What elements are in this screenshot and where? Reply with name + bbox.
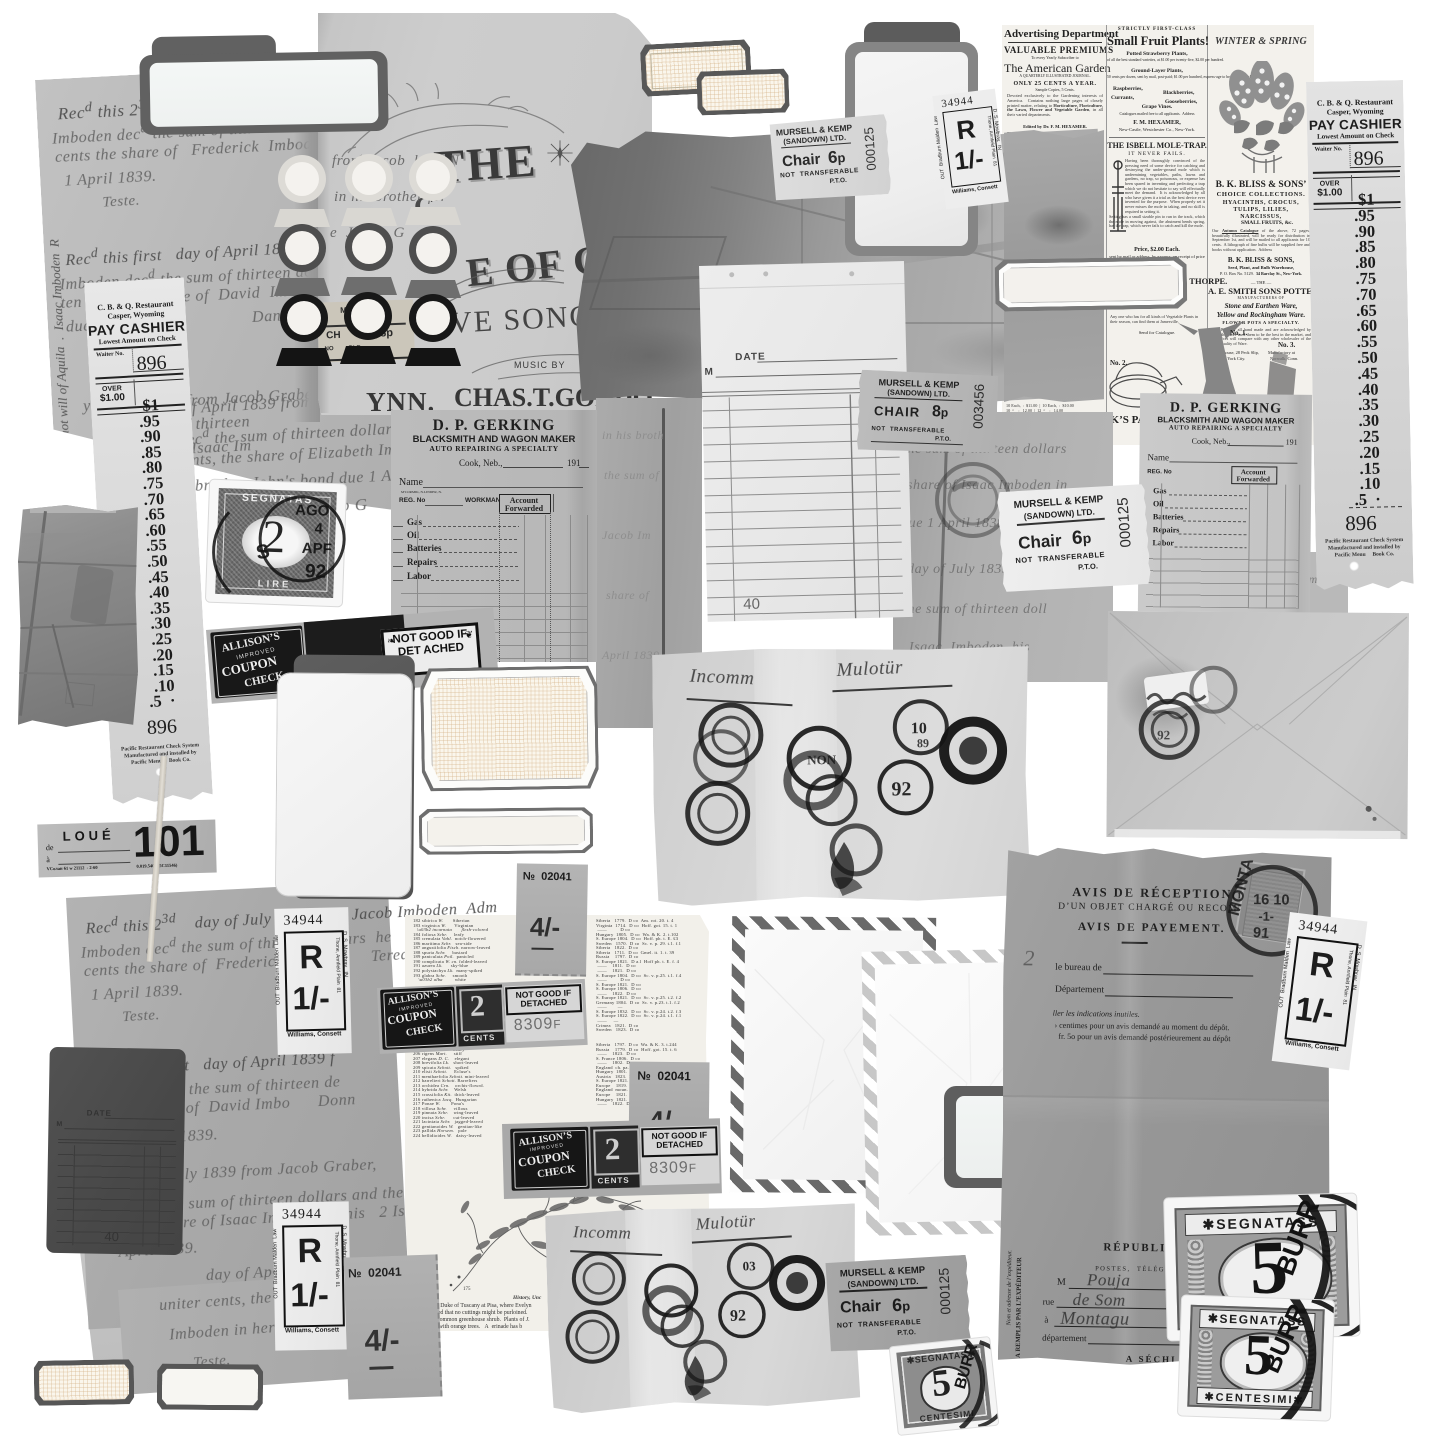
svg-text:BURR: BURR: [1257, 1300, 1312, 1377]
svg-text:S: S: [254, 540, 271, 564]
svg-text:BURR: BURR: [952, 1341, 981, 1391]
svg-text:92: 92: [1157, 727, 1170, 742]
svg-text:No. 2.: No. 2.: [1110, 359, 1128, 367]
svg-text:03: 03: [742, 1258, 756, 1273]
svg-text:BURR: BURR: [1270, 1196, 1325, 1280]
svg-text:89: 89: [917, 736, 929, 750]
svg-text:91: 91: [1252, 925, 1269, 942]
svg-text:AGO: AGO: [295, 502, 330, 520]
svg-text:APF: APF: [302, 540, 333, 558]
svg-text:92: 92: [730, 1307, 746, 1324]
svg-text:16 10: 16 10: [1253, 892, 1290, 909]
svg-text:4: 4: [314, 520, 324, 537]
svg-text:-1-: -1-: [1258, 909, 1274, 924]
svg-text:NON: NON: [807, 752, 837, 767]
svg-text:No. 1.: No. 1.: [1230, 329, 1248, 337]
svg-text:92: 92: [305, 561, 327, 583]
svg-text:92: 92: [891, 778, 911, 800]
svg-text:10: 10: [911, 720, 927, 737]
svg-text:No. 3.: No. 3.: [1278, 341, 1296, 349]
